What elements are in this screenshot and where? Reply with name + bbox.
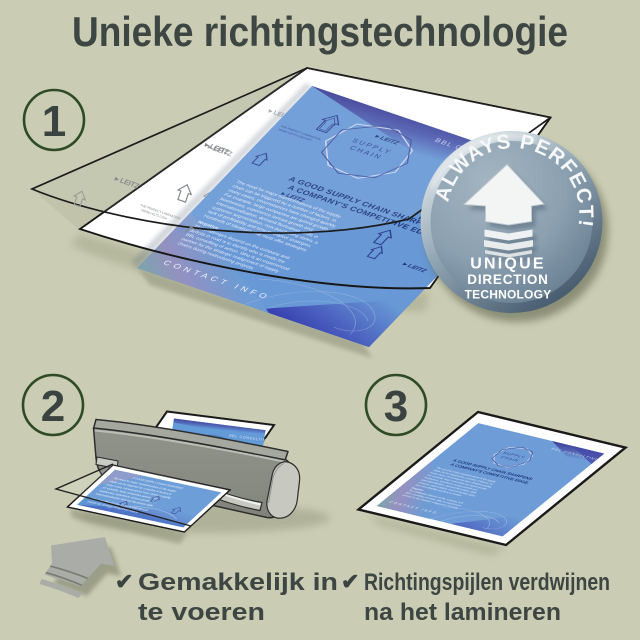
- svg-text:Richtingspijlen verdwijnen: Richtingspijlen verdwijnen: [364, 569, 610, 596]
- svg-text:Gemakkelijk in: Gemakkelijk in: [138, 569, 338, 596]
- svg-text:2: 2: [41, 382, 65, 431]
- svg-text:✔: ✔: [115, 569, 133, 594]
- svg-text:te voeren: te voeren: [138, 599, 265, 626]
- svg-text:✔: ✔: [341, 569, 359, 594]
- svg-text:1: 1: [42, 97, 66, 146]
- svg-text:UNIQUE: UNIQUE: [470, 256, 545, 273]
- svg-text:DIRECTION: DIRECTION: [467, 272, 548, 287]
- svg-text:na het lamineren: na het lamineren: [364, 599, 561, 626]
- svg-text:Unieke richtingstechnologie: Unieke richtingstechnologie: [72, 8, 568, 55]
- svg-text:3: 3: [384, 382, 408, 431]
- svg-text:TECHNOLOGY: TECHNOLOGY: [465, 288, 552, 302]
